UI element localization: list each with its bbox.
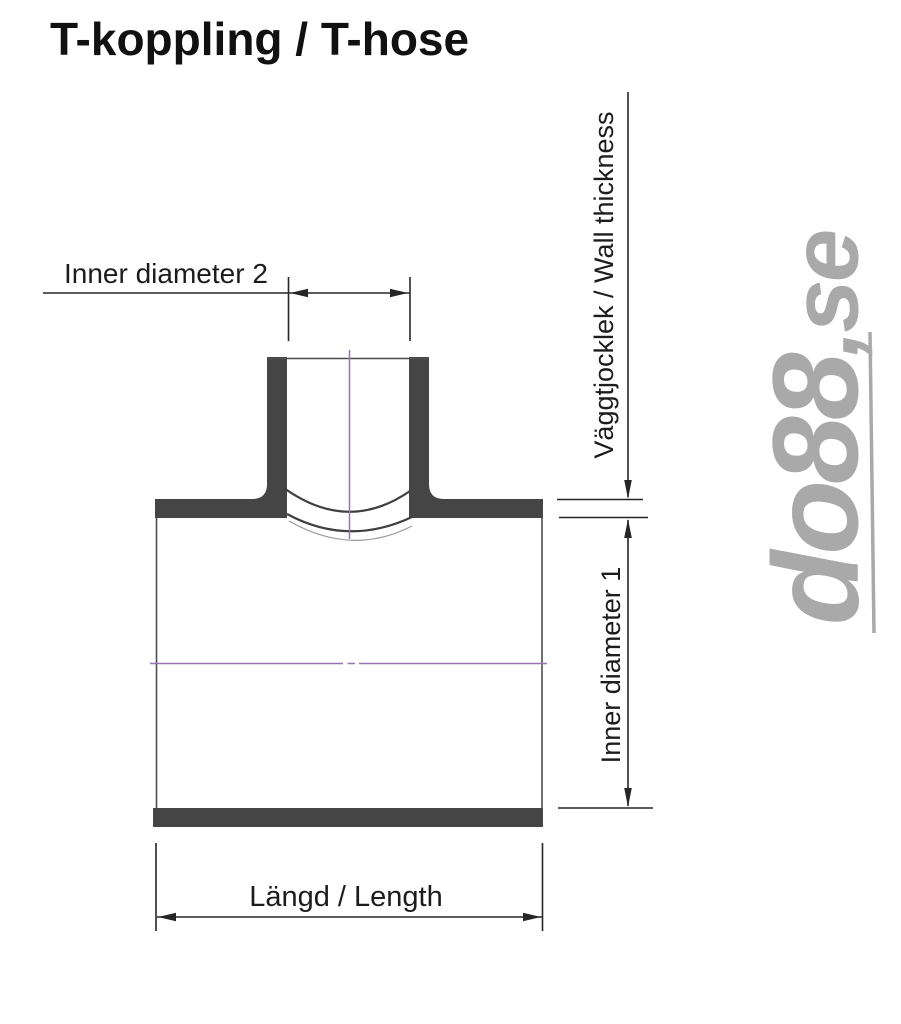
inner-diameter-2-label: Inner diameter 2: [64, 258, 268, 290]
length-label: Längd / Length: [196, 881, 496, 914]
watermark-brand-suffix: ,se: [778, 232, 874, 356]
wall-thickness-label: Väggtjocklek / Wall thickness: [589, 94, 619, 476]
watermark-brand-main: do88: [755, 356, 877, 625]
bottom-wall: [153, 808, 543, 827]
inner-diameter-1-label: Inner diameter 1: [597, 543, 625, 787]
branch-wall-right: [409, 357, 543, 518]
saddle-arc-upper: [284, 488, 410, 512]
watermark-logo: do88,se: [755, 204, 890, 654]
branch-wall-left: [155, 357, 287, 518]
